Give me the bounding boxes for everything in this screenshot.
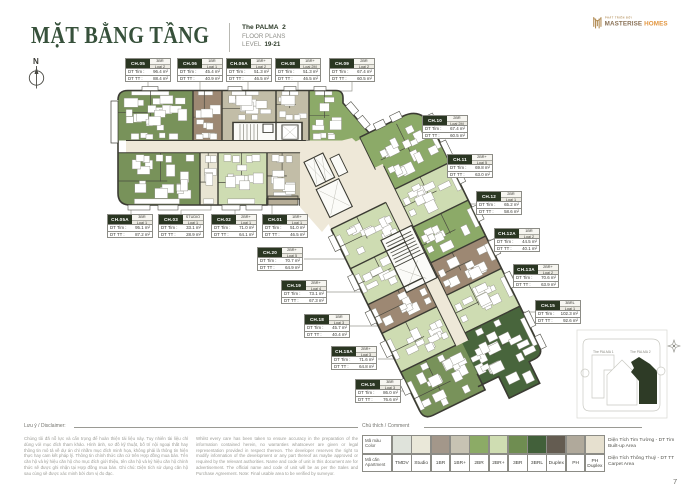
svg-text:The PALMA 2: The PALMA 2 [630,350,651,354]
svg-text:N: N [33,57,39,66]
svg-text:The PALMA 1: The PALMA 1 [593,350,614,354]
